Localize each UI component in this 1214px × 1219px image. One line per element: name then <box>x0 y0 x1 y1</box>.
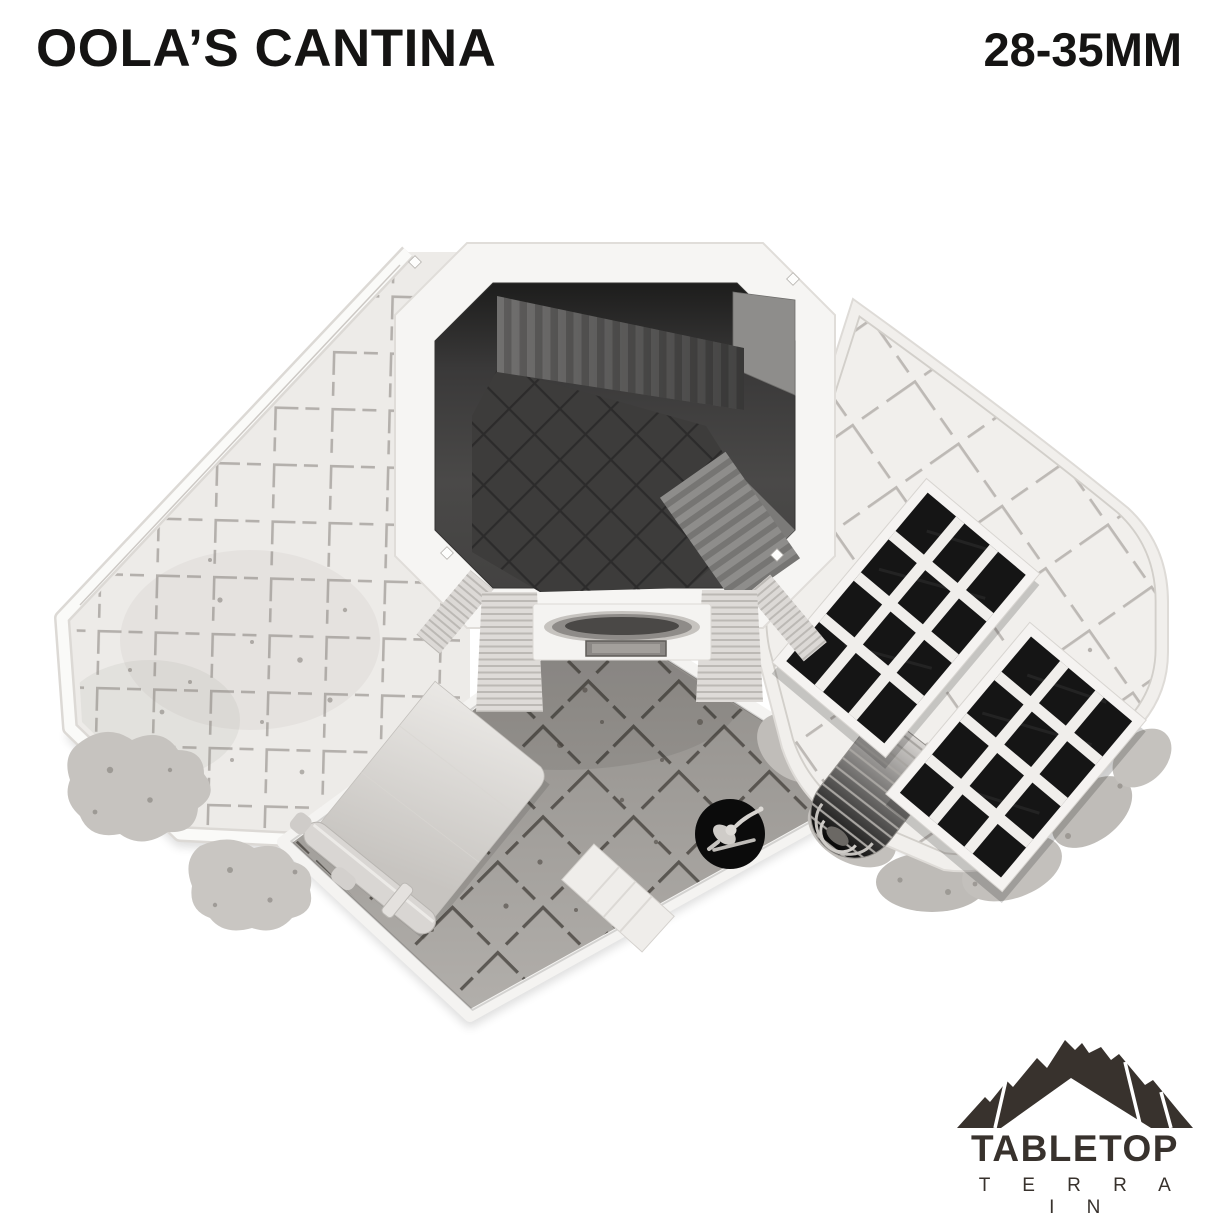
mountain-icon <box>957 1036 1193 1132</box>
tower <box>395 243 835 628</box>
scale-badge: 28-35MM <box>983 22 1182 77</box>
miniature-token <box>695 799 765 869</box>
entrance-basin <box>544 611 700 643</box>
product-render <box>0 0 1214 1214</box>
brand-logo: TABLETOP T E R R A I N <box>956 1036 1194 1219</box>
brand-name: TABLETOP <box>956 1128 1194 1170</box>
page-title: OOLA’S CANTINA <box>36 18 496 79</box>
brand-subtitle: T E R R A I N <box>956 1175 1194 1219</box>
product-page: OOLA’S CANTINA 28-35MM TABLETOP T E R R … <box>0 0 1214 1214</box>
